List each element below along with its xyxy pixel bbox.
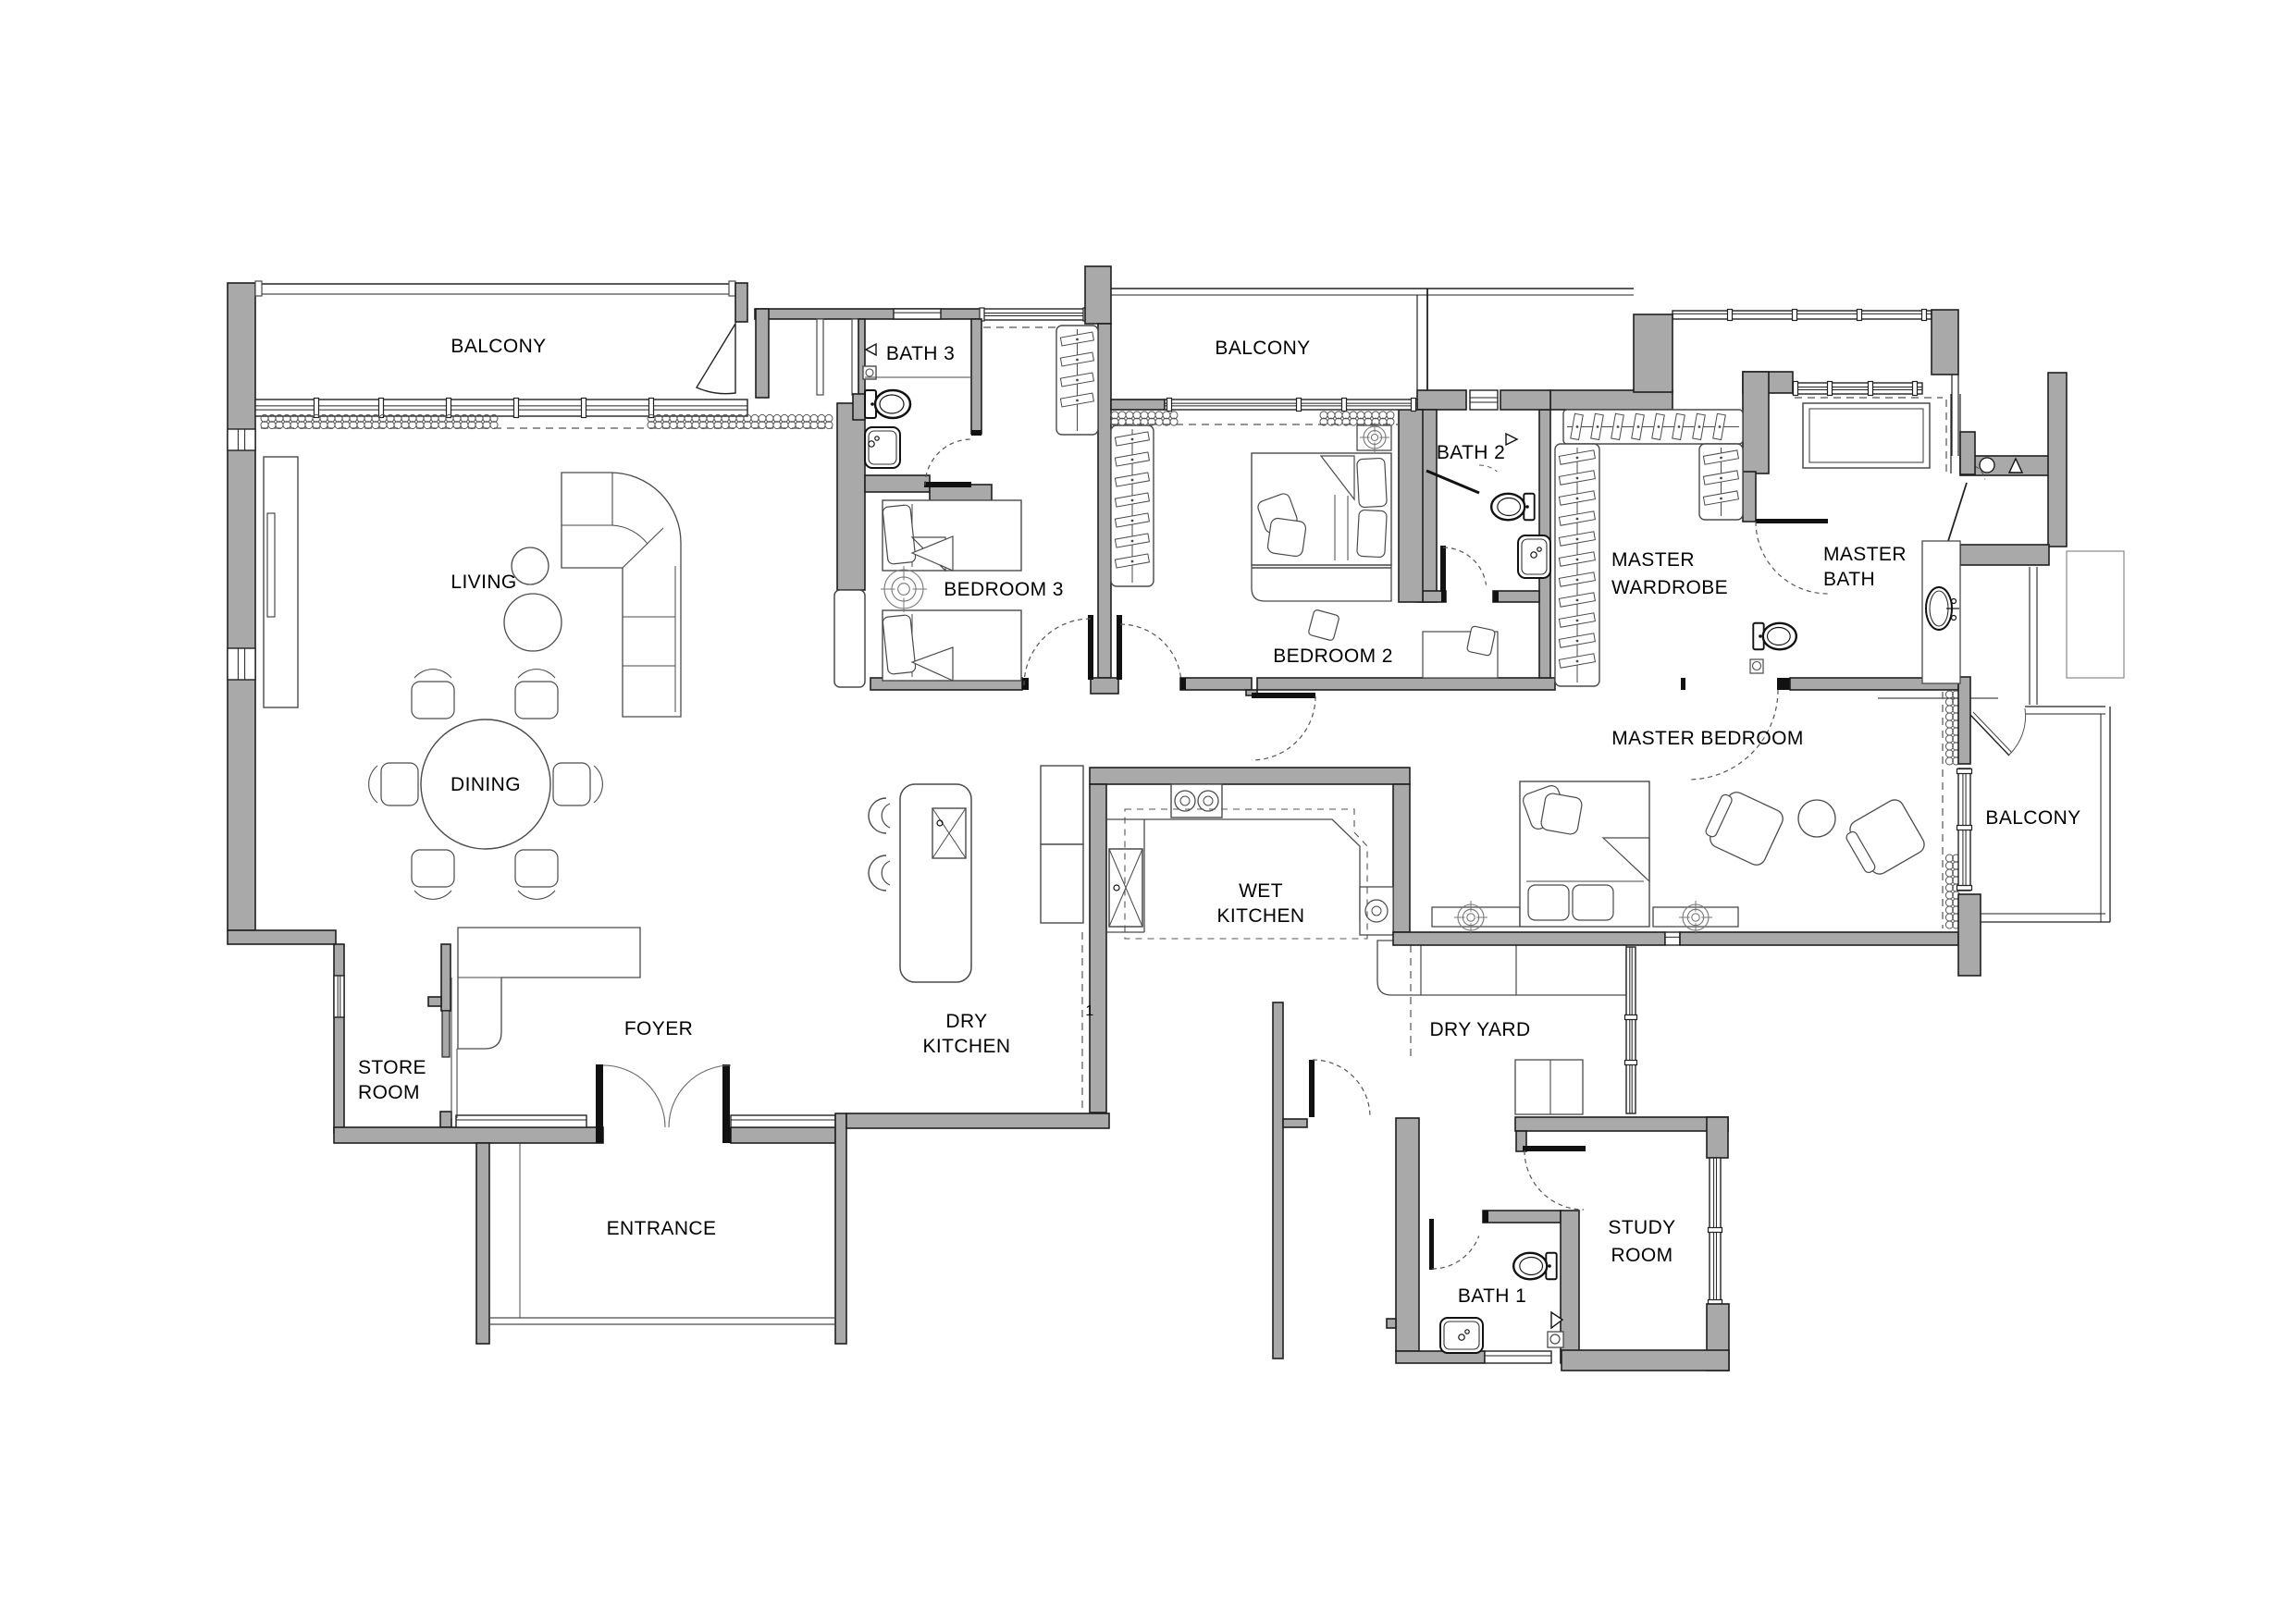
svg-text:WARDROBE: WARDROBE (1611, 577, 1728, 598)
svg-text:STORE: STORE (358, 1057, 426, 1078)
svg-text:STUDY: STUDY (1608, 1217, 1675, 1238)
svg-text:KITCHEN: KITCHEN (923, 1036, 1011, 1057)
svg-text:1: 1 (1085, 1003, 1093, 1019)
svg-text:MASTER: MASTER (1823, 544, 1907, 565)
svg-text:DINING: DINING (451, 774, 521, 795)
svg-text:MASTER: MASTER (1611, 549, 1695, 571)
svg-text:BATH 3: BATH 3 (886, 343, 955, 364)
svg-text:MASTER BEDROOM: MASTER BEDROOM (1611, 728, 1803, 749)
svg-text:LIVING: LIVING (451, 572, 516, 593)
svg-text:BALCONY: BALCONY (1215, 338, 1310, 359)
svg-text:BATH 2: BATH 2 (1437, 442, 1505, 463)
svg-text:BATH 1: BATH 1 (1458, 1285, 1526, 1307)
svg-text:BALCONY: BALCONY (451, 336, 546, 357)
svg-text:BEDROOM 2: BEDROOM 2 (1273, 646, 1393, 667)
svg-text:BATH: BATH (1823, 569, 1875, 590)
svg-text:BALCONY: BALCONY (1985, 807, 2080, 829)
svg-text:BEDROOM 3: BEDROOM 3 (944, 579, 1064, 600)
svg-text:KITCHEN: KITCHEN (1217, 905, 1305, 927)
svg-text:WET: WET (1239, 880, 1283, 902)
svg-text:ROOM: ROOM (358, 1082, 420, 1103)
svg-text:ROOM: ROOM (1611, 1245, 1673, 1266)
svg-text:FOYER: FOYER (624, 1018, 693, 1039)
svg-text:DRY YARD: DRY YARD (1429, 1019, 1530, 1040)
svg-text:ENTRANCE: ENTRANCE (607, 1218, 717, 1239)
svg-text:DRY: DRY (945, 1011, 987, 1032)
